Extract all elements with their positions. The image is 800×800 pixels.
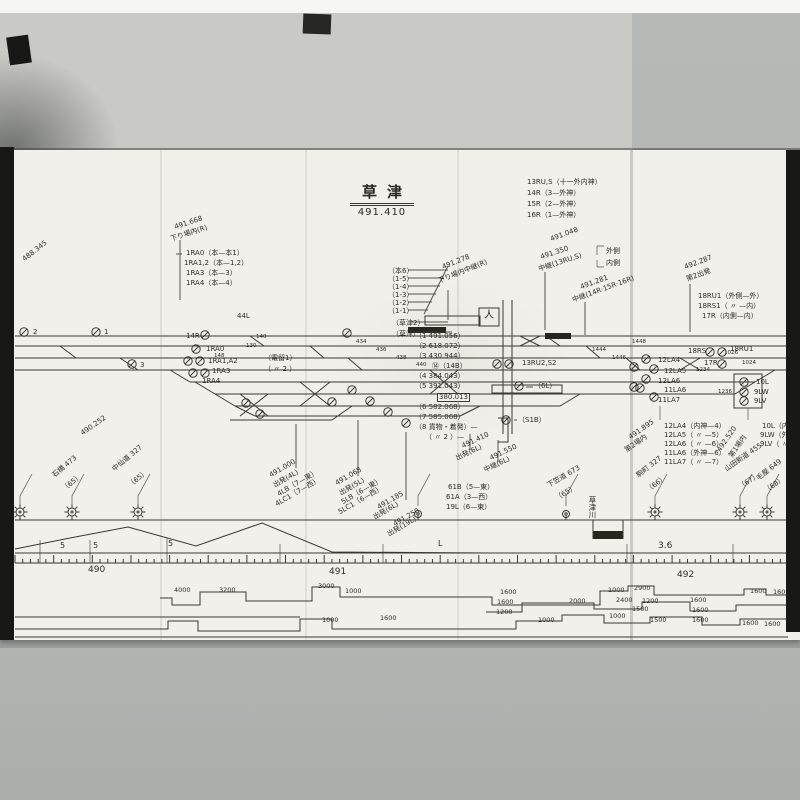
diagram-label: 1000	[609, 613, 626, 620]
milepost-492: 492	[677, 571, 694, 580]
diagram-label: 1500	[650, 617, 667, 624]
diagram-label: 434	[356, 340, 367, 346]
diagram-label: 12LA6（ 〃 —6）	[664, 441, 723, 448]
diagram-label: 5	[168, 540, 173, 548]
diagram-label: （66）	[645, 474, 668, 494]
diagram-label: 44L	[237, 313, 250, 320]
diagram-label: （2 618.072）	[415, 343, 465, 350]
diagram-label: 12LA4（内神—4）	[664, 423, 726, 430]
diagram-label: 12LA6	[658, 378, 680, 385]
diagram-label: 18RS	[688, 348, 706, 355]
label-layer: 491.668下り場内(R)1RA0（本—本1）1RA1,2（本—1,2）1RA…	[0, 0, 800, 800]
diagram-label: （ 〃 2 ）	[264, 366, 296, 373]
diagram-label: （5 391.043）	[415, 383, 465, 390]
diagram-label: 18RS1（ 〃 —内）	[698, 303, 760, 310]
diagram-label: 1024	[742, 361, 756, 367]
diagram-label: 380.013	[437, 393, 470, 402]
diagram-label: 1444	[592, 348, 606, 354]
diagram-label: （ 〃 2 ）—	[425, 434, 464, 441]
diagram-label: ⑭（14B）	[432, 363, 467, 370]
diagram-label: 488.345	[21, 240, 48, 264]
diagram-label: 440	[416, 363, 427, 369]
diagram-label: 3200	[219, 587, 236, 594]
diagram-label: 61A（3—西）	[446, 494, 492, 501]
diagram-label: 中継(6L)	[483, 456, 511, 474]
diagram-label: （電留1）	[264, 355, 296, 362]
diagram-label: 1600	[742, 620, 759, 627]
diagram-label: 1600	[692, 607, 709, 614]
diagram-label: 1600	[764, 621, 781, 628]
diagram-label: 436	[376, 348, 387, 354]
diagram-label: 1	[104, 329, 108, 336]
diagram-label: 491.048	[549, 227, 579, 244]
signal-legend: 13RU,S（十一外内神） 14R（3—外神） 15R（2—外神） 16R（1—…	[527, 177, 602, 221]
diagram-label: 第2場内	[624, 434, 649, 455]
diagram-label: 1026	[724, 351, 738, 357]
station-title-block: 草津 491.410	[350, 181, 414, 218]
diagram-label: 61B（5—東）	[448, 484, 494, 491]
diagram-label: 1500	[632, 606, 649, 613]
diagram-label: 1600	[690, 597, 707, 604]
diagram-label: 14R	[186, 333, 200, 340]
diagram-label: （7 585.068）	[415, 414, 465, 421]
black-edge-right	[786, 150, 800, 632]
diagram-label: 19L（6—東）	[446, 504, 491, 511]
diagram-label: 出発(6L)	[455, 444, 483, 462]
diagram-label: 2000	[569, 598, 586, 605]
diagram-label: （68）	[763, 475, 786, 495]
diagram-label: 1600	[497, 599, 514, 606]
diagram-label: 12LA5	[664, 368, 686, 375]
diagram-label: 1RA3	[212, 368, 230, 375]
black-edge-left	[0, 147, 14, 640]
diagram-label: （4 384.043）	[415, 373, 465, 380]
diagram-label: 3	[140, 362, 144, 369]
diagram-label: （65）	[61, 473, 83, 493]
milepost-490: 490	[88, 566, 105, 575]
diagram-label: 4000	[174, 587, 191, 594]
diagram-label: 1RA4	[202, 378, 220, 385]
diagram-label: 5	[60, 542, 65, 550]
diagram-label: 10L	[756, 379, 769, 386]
diagram-label: 2	[33, 329, 37, 336]
diagram-label: 1600	[750, 588, 767, 595]
diagram-label: 2900	[634, 585, 651, 592]
diagram-label: 1234	[696, 368, 710, 374]
diagram-label: 1600	[500, 589, 517, 596]
crossing-box-symbol: 人	[484, 311, 494, 322]
diagram-label: 1RA0（本—本1）	[186, 250, 244, 257]
diagram-label: 1600	[380, 615, 397, 622]
diagram-label: 下笠道 673	[546, 465, 581, 490]
diagram-label: 1448	[632, 340, 646, 346]
diagram-label: 11LA6	[664, 387, 686, 394]
diagram-label: 490.252	[80, 415, 108, 438]
diagram-label: 1RA3（本—3）	[186, 270, 237, 277]
diagram-label: 1000	[345, 588, 362, 595]
diagram-label: （S1B）	[518, 417, 546, 424]
milepost-491: 491	[329, 568, 346, 577]
diagram-label: 1000	[322, 617, 339, 624]
diagram-label: 11LA7	[658, 397, 680, 404]
scanned-track-diagram-photo: 491.668下り場内(R)1RA0（本—本1）1RA1,2（本—1,2）1RA…	[0, 0, 800, 800]
diagram-label: 草津川	[588, 496, 596, 519]
diagram-label: 1RA1,2（本—1,2）	[184, 260, 248, 267]
diagram-label: 9LV	[754, 398, 766, 405]
legend-line: 13RU,S（十一外内神）	[527, 177, 602, 188]
diagram-label: 18RU1（外側—外）	[698, 293, 763, 300]
diagram-label: （6L）	[534, 383, 556, 390]
diagram-label: L	[438, 540, 442, 548]
station-name: 草津	[350, 181, 414, 206]
diagram-label: 1000	[608, 587, 625, 594]
diagram-label: 内側	[606, 260, 620, 267]
diagram-label: （8 貨物・着発）—	[415, 424, 478, 431]
diagram-label: 12LA4	[658, 357, 680, 364]
diagram-label: 1000	[538, 617, 555, 624]
diagram-label: 1200	[496, 609, 513, 616]
diagram-label: （6 582.068）	[415, 404, 465, 411]
diagram-label: 1RA4（本—4）	[186, 280, 237, 287]
diagram-label: 17R（内側—内）	[702, 313, 758, 320]
diagram-label: 山田新道 455	[724, 442, 764, 473]
diagram-label: 438	[396, 356, 407, 362]
sheet-bottom-shadow	[0, 640, 800, 648]
legend-line: 14R（3—外神）	[527, 188, 602, 199]
diagram-label: 13RU2,S2	[522, 360, 556, 367]
diagram-label: （1-1）	[388, 308, 413, 315]
diagram-label: 3000	[318, 583, 335, 590]
diagram-label: 130	[246, 344, 257, 350]
diagram-label: （1 491.056）	[415, 333, 465, 340]
diagram-label: 1236	[718, 390, 732, 396]
diagram-label: 140	[256, 335, 267, 341]
diagram-label: 1600	[692, 617, 709, 624]
diagram-label: （草津2）	[392, 320, 424, 327]
diagram-label: （3 430.944）	[415, 353, 465, 360]
diagram-label: 外側	[606, 248, 620, 255]
diagram-label: 148	[214, 354, 225, 360]
diagram-label: 5	[93, 542, 98, 550]
legend-line: 16R（1—外神）	[527, 210, 602, 221]
diagram-label: 11LA7（ 〃 —7）	[664, 459, 723, 466]
diagram-label: 2400	[616, 597, 633, 604]
diagram-label: 3.6	[658, 542, 672, 551]
diagram-label: 中仙道 327	[111, 444, 144, 473]
diagram-label: （65）	[127, 469, 149, 489]
legend-line: 15R（2—外神）	[527, 199, 602, 210]
diagram-label: 12LA5（ 〃 —5）	[664, 432, 723, 439]
diagram-label: 11LA6（外神—6）	[664, 450, 726, 457]
diagram-label: （65）	[554, 485, 578, 503]
diagram-label: 9LW	[754, 389, 769, 396]
diagram-label: 1200	[642, 598, 659, 605]
diagram-label: 1446	[612, 356, 626, 362]
station-kilometer: 491.410	[350, 206, 414, 218]
